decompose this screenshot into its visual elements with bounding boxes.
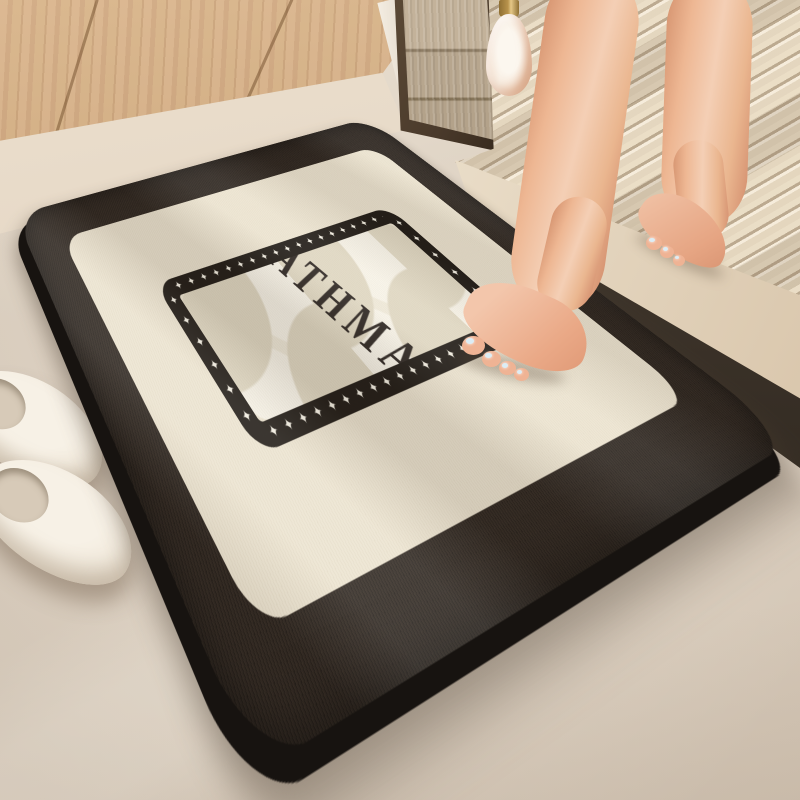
back-toe — [673, 255, 685, 266]
front-toe — [482, 351, 501, 367]
back-toe — [646, 236, 662, 250]
toenail — [517, 370, 522, 374]
front-toe — [514, 368, 529, 381]
toenail — [663, 247, 668, 251]
toenail — [466, 338, 474, 344]
front-toe — [462, 336, 485, 355]
toenail — [649, 238, 655, 242]
toenail — [502, 363, 508, 368]
bathmat-product-photo: ✦✦✦✦✦✦✦✦✦✦✦✦✦✦✦✦✦✦✦✦ ✦✦✦✦✦✦✦✦✦✦✦✦✦✦✦✦✦✦✦… — [0, 0, 800, 800]
toenail — [675, 256, 679, 259]
cabinet-panel-seam — [52, 0, 99, 143]
back-toe — [660, 246, 674, 258]
toenail — [485, 353, 492, 358]
cabinet-panel-seam — [245, 0, 293, 102]
